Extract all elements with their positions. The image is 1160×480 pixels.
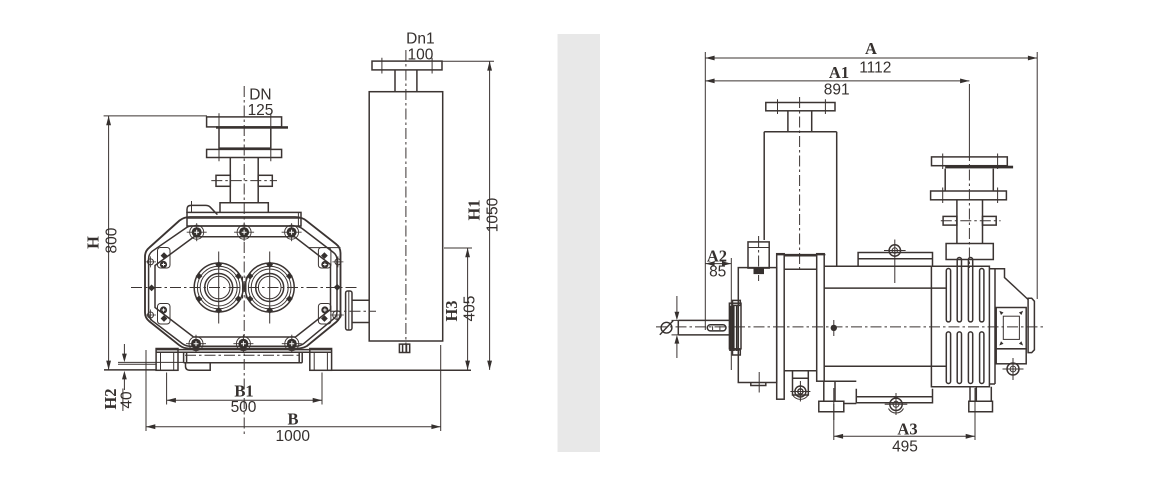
svg-text:495: 495	[892, 439, 918, 456]
svg-text:B1: B1	[234, 381, 253, 400]
svg-text:A3: A3	[897, 420, 917, 439]
svg-text:125: 125	[248, 102, 274, 119]
svg-text:DN: DN	[249, 87, 271, 104]
svg-text:1000: 1000	[276, 428, 311, 445]
svg-text:800: 800	[104, 227, 121, 253]
svg-text:A: A	[865, 39, 877, 58]
svg-text:H2: H2	[101, 388, 120, 409]
svg-text:B: B	[287, 410, 298, 429]
svg-text:H: H	[84, 236, 103, 249]
svg-text:H3: H3	[442, 300, 461, 321]
svg-text:100: 100	[407, 47, 433, 64]
svg-text:405: 405	[462, 296, 479, 322]
svg-text:1112: 1112	[859, 60, 891, 77]
svg-text:500: 500	[231, 399, 257, 416]
svg-text:1050: 1050	[485, 197, 502, 232]
svg-text:H1: H1	[465, 199, 484, 220]
svg-text:40: 40	[119, 391, 136, 409]
svg-text:Dn1: Dn1	[406, 31, 434, 48]
svg-text:85: 85	[709, 264, 726, 281]
svg-text:A1: A1	[829, 63, 849, 82]
svg-text:891: 891	[824, 82, 850, 99]
